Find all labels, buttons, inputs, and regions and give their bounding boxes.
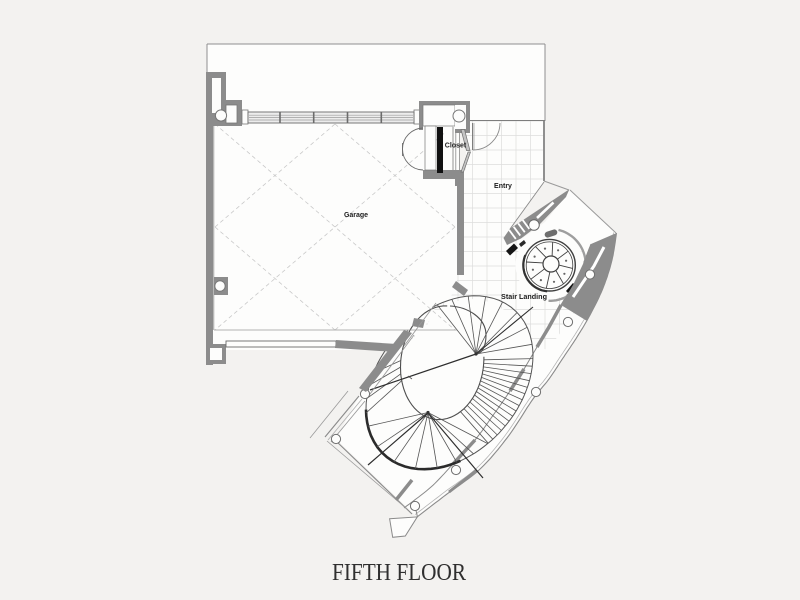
svg-text:Garage: Garage bbox=[344, 212, 368, 219]
svg-text:Entry: Entry bbox=[494, 183, 512, 190]
svg-text:Stair Landing: Stair Landing bbox=[501, 292, 547, 301]
svg-text:Closet: Closet bbox=[445, 143, 467, 150]
svg-text:FIFTH FLOOR: FIFTH FLOOR bbox=[332, 559, 467, 586]
